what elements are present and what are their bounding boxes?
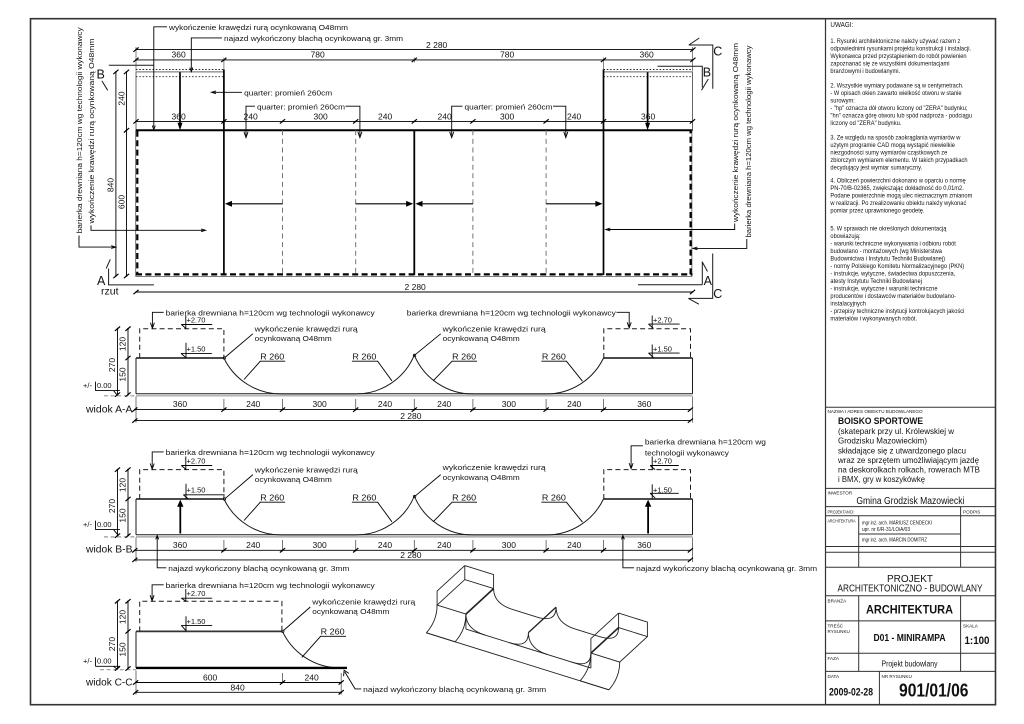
svg-text:B: B xyxy=(97,68,105,82)
svg-text:240: 240 xyxy=(567,112,581,122)
svg-text:+1.50: +1.50 xyxy=(187,344,206,353)
svg-text:R 260: R 260 xyxy=(260,353,285,362)
svg-text:240: 240 xyxy=(437,540,451,550)
svg-text:3. Ze względu na sposób zaokr: 3. Ze względu na sposób zaokrąglania wym… xyxy=(830,134,960,142)
svg-text:- W opisach okien zawarto wiel: - W opisach okien zawarto wielkość otwor… xyxy=(830,90,962,98)
svg-text:5. W sprawach nie określonych: 5. W sprawach nie określonych dokumentac… xyxy=(830,225,946,233)
svg-text:barierka drewniana h=120cm wg: barierka drewniana h=120cm wg technologi… xyxy=(744,45,753,237)
svg-text:+1.50: +1.50 xyxy=(187,617,206,626)
svg-text:- przepisy techniczne instytuc: - przepisy techniczne instytucji kontrol… xyxy=(830,308,964,316)
svg-text:D01 - MINIRAMPA: D01 - MINIRAMPA xyxy=(874,633,946,644)
svg-text:Projekt budowlany: Projekt budowlany xyxy=(882,659,938,668)
svg-text:0.00: 0.00 xyxy=(97,381,112,390)
svg-text:R 260: R 260 xyxy=(452,494,477,503)
svg-text:300: 300 xyxy=(502,399,516,409)
svg-text:INWESTOR: INWESTOR xyxy=(828,491,853,496)
svg-text:240: 240 xyxy=(567,399,581,409)
svg-text:mgr inż. arch. MARCIN DOMITRZ: mgr inż. arch. MARCIN DOMITRZ xyxy=(862,538,927,544)
svg-text:barierka drewniana h=120cm wg: barierka drewniana h=120cm wg xyxy=(645,438,766,447)
svg-text:barierka drewniana h=120cm wg: barierka drewniana h=120cm wg technologi… xyxy=(407,308,616,317)
svg-text:DATA: DATA xyxy=(828,674,841,679)
svg-text:300: 300 xyxy=(502,540,516,550)
svg-text:ocynkowaną O48mm: ocynkowaną O48mm xyxy=(443,473,520,482)
svg-text:+1.50: +1.50 xyxy=(187,485,206,494)
svg-text:2 280: 2 280 xyxy=(400,411,422,421)
svg-text:NR RYSUNKU: NR RYSUNKU xyxy=(882,674,912,679)
svg-text:240: 240 xyxy=(116,91,126,105)
svg-text:Grodzisku Mazowieckim): Grodzisku Mazowieckim) xyxy=(838,436,927,446)
svg-text:600: 600 xyxy=(203,673,217,683)
svg-text:ocynkowaną O48mm: ocynkowaną O48mm xyxy=(255,475,332,484)
svg-text:PN-70/B-02365, zwiększając dok: PN-70/B-02365, zwiększając dokładność do… xyxy=(830,185,964,193)
svg-text:najazd wykończony blachą ocynk: najazd wykończony blachą ocynkowaną gr. … xyxy=(636,564,817,573)
svg-text:najazd wykończony blachą ocynk: najazd wykończony blachą ocynkowaną gr. … xyxy=(224,34,403,43)
svg-text:240: 240 xyxy=(246,540,260,550)
svg-text:wykończenie krawędzi rurą: wykończenie krawędzi rurą xyxy=(442,325,547,334)
svg-text:1:100: 1:100 xyxy=(965,635,990,647)
svg-text:R 260: R 260 xyxy=(352,494,377,503)
svg-text:360: 360 xyxy=(172,50,186,60)
svg-text:300: 300 xyxy=(500,112,514,122)
svg-text:atesty Instytutu Techniki Bu: atesty Instytutu Techniki Budowlanej xyxy=(830,278,921,286)
svg-text:budowlano - montażowych (wg Mi: budowlano - montażowych (wg Ministerstwa xyxy=(830,248,942,256)
svg-text:360: 360 xyxy=(640,50,654,60)
svg-text:ocynkowaną O48mm: ocynkowaną O48mm xyxy=(255,334,332,343)
svg-text:360: 360 xyxy=(173,540,187,550)
svg-text:2. Wszystkie wymiary podawane: 2. Wszystkie wymiary podawane są w centy… xyxy=(830,82,963,90)
svg-text:240: 240 xyxy=(567,540,581,550)
svg-text:zapoznanać się ze wszystkimi d: zapoznanać się ze wszystkimi dokumentacj… xyxy=(830,60,949,68)
svg-text:270: 270 xyxy=(107,358,117,372)
svg-text:i BMX, gry w koszykówkę: i BMX, gry w koszykówkę xyxy=(838,474,925,484)
svg-text:wykończenie krawędzi rurą: wykończenie krawędzi rurą xyxy=(311,598,416,607)
svg-text:RYSUNKU: RYSUNKU xyxy=(828,629,850,634)
svg-text:+2.70: +2.70 xyxy=(187,589,206,598)
svg-text:BRANŻA: BRANŻA xyxy=(828,597,848,603)
svg-text:decydujący jest wymiar sumaryc: decydujący jest wymiar sumaryczny. xyxy=(830,164,922,172)
svg-text:A: A xyxy=(97,274,106,288)
svg-text:0.00: 0.00 xyxy=(97,520,112,529)
svg-text:wykończenie krawędzi rurą: wykończenie krawędzi rurą xyxy=(254,325,359,334)
svg-text:+/-: +/- xyxy=(83,520,92,529)
svg-text:wykończenie krawędzi rurą ocyn: wykończenie krawędzi rurą ocynkowaną O48… xyxy=(168,23,348,32)
svg-text:pomiar przez uprawnionego geod: pomiar przez uprawnionego geodetę. xyxy=(830,207,924,215)
svg-text:PODPIS: PODPIS xyxy=(963,510,980,515)
svg-text:- instrukcje, wytyczne i wa: - instrukcje, wytyczne i warunki technic… xyxy=(830,285,938,293)
svg-text:+2.70: +2.70 xyxy=(187,456,206,465)
svg-text:wykończenie krawędzi rurą ocyn: wykończenie krawędzi rurą ocynkowaną O48… xyxy=(87,39,96,225)
svg-text:240: 240 xyxy=(305,673,319,683)
svg-text:zbiorczym wymiarem elementu. W: zbiorczym wymiarem elementu. W takich pr… xyxy=(830,157,968,165)
svg-text:ARCHITEKTURA: ARCHITEKTURA xyxy=(866,604,953,616)
svg-text:300: 300 xyxy=(313,399,327,409)
svg-text:surowym:: surowym: xyxy=(830,97,855,105)
svg-text:widok B-B: widok B-B xyxy=(85,544,132,556)
svg-text:odpowiednimi rysunkami projekt: odpowiednimi rysunkami projektu konstruk… xyxy=(830,45,971,53)
svg-text:barierka drewniana h=120cm wg: barierka drewniana h=120cm wg technologi… xyxy=(75,27,84,233)
svg-text:+2.70: +2.70 xyxy=(653,315,672,324)
svg-text:Wykonawca przed przystąpieni: Wykonawca przed przystąpieniem do robót … xyxy=(830,53,967,61)
svg-text:120: 120 xyxy=(117,337,127,351)
svg-text:branżowymi i budowlanymi.: branżowymi i budowlanymi. xyxy=(830,68,900,76)
svg-text:PROJEKTANCI:: PROJEKTANCI: xyxy=(828,510,855,515)
svg-text:obowiazują:: obowiazują: xyxy=(830,233,860,241)
svg-text:UWAGI:: UWAGI: xyxy=(830,22,853,30)
svg-text:na deskorolkach rolkach, rower: na deskorolkach rolkach, rowerach MTB xyxy=(838,465,980,475)
svg-text:Gmina Grodzisk Mazowiecki: Gmina Grodzisk Mazowiecki xyxy=(856,496,964,507)
svg-text:150: 150 xyxy=(117,367,127,381)
svg-text:1. Rysunki architektoniczne n: 1. Rysunki architektoniczne należy używa… xyxy=(830,38,960,46)
svg-text:270: 270 xyxy=(107,637,117,651)
svg-text:najazd wykończony blachą ocynk: najazd wykończony blachą ocynkowaną gr. … xyxy=(168,564,349,573)
svg-text:ARCHITEKTONICZNO - BUDOWLANY: ARCHITEKTONICZNO - BUDOWLANY xyxy=(838,584,983,595)
svg-text:240: 240 xyxy=(246,399,260,409)
svg-text:(skatepark przy ul. Królewskie: (skatepark przy ul. Królewskiej w xyxy=(838,426,955,436)
svg-text:najazd wykończony blachą ocynk: najazd wykończony blachą ocynkowaną gr. … xyxy=(363,685,546,694)
svg-text:2009-02-28: 2009-02-28 xyxy=(829,687,873,699)
svg-text:R 260: R 260 xyxy=(452,353,477,362)
svg-text:R 260: R 260 xyxy=(542,494,567,503)
svg-text:780: 780 xyxy=(500,50,514,60)
svg-text:instalacyjnych: instalacyjnych xyxy=(830,300,866,308)
svg-text:niezgodności sumy wymiarów cz: niezgodności sumy wymiarów cząstkowych z… xyxy=(830,149,947,157)
svg-text:- instrukcje, wytyczne, świa: - instrukcje, wytyczne, świadectwa dopus… xyxy=(830,270,955,278)
svg-text:liczony od "ZERA" budynku.: liczony od "ZERA" budynku. xyxy=(830,120,901,128)
svg-text:widok C-C: widok C-C xyxy=(85,677,133,689)
svg-text:w realizacji. Po zrealizowaniu: w realizacji. Po zrealizowaniu obiektu n… xyxy=(830,200,967,208)
svg-text:- "hp" oznacza dół otworu licz: - "hp" oznacza dół otworu liczony od "ZE… xyxy=(830,105,967,113)
svg-text:240: 240 xyxy=(378,540,392,550)
svg-text:składające się z utwardzonego: składające się z utwardzonego placu xyxy=(838,446,966,456)
svg-text:materiałów i wykonywanych robó: materiałów i wykonywanych robót. xyxy=(830,315,917,323)
svg-text:producentów i dostawców materi: producentów i dostawców materiałów budow… xyxy=(830,293,955,301)
svg-text:360: 360 xyxy=(641,112,655,122)
svg-text:"hn" oznacza górę otworu lub s: "hn" oznacza górę otworu lub spód nadpro… xyxy=(830,112,972,120)
svg-text:360: 360 xyxy=(637,399,651,409)
svg-text:840: 840 xyxy=(106,178,116,192)
svg-text:+/-: +/- xyxy=(83,381,92,390)
svg-text:mgr inż. arch. MARIUSZ CENDECK: mgr inż. arch. MARIUSZ CENDECKI xyxy=(862,520,932,526)
svg-text:wykończenie krawędzi rurą: wykończenie krawędzi rurą xyxy=(254,465,359,474)
svg-text:901/01/06: 901/01/06 xyxy=(899,680,969,700)
svg-text:+1.50: +1.50 xyxy=(653,344,672,353)
svg-text:SKALA: SKALA xyxy=(963,623,979,628)
svg-text:300: 300 xyxy=(314,112,328,122)
svg-text:600: 600 xyxy=(116,195,126,209)
svg-text:R 260: R 260 xyxy=(542,353,567,362)
svg-text:Podane powierzchnie mogą ulec: Podane powierzchnie mogą ulec nieznaczny… xyxy=(830,192,972,200)
svg-text:widok A-A: widok A-A xyxy=(85,403,132,415)
svg-text:ARCHITEKTURA: ARCHITEKTURA xyxy=(828,518,857,523)
svg-text:240: 240 xyxy=(378,399,392,409)
svg-text:ocynkowaną O48mm: ocynkowaną O48mm xyxy=(312,607,389,616)
svg-text:150: 150 xyxy=(117,642,127,656)
svg-text:quarter: promień 260cm: quarter: promień 260cm xyxy=(257,103,345,112)
svg-text:120: 120 xyxy=(117,478,127,492)
svg-text:240: 240 xyxy=(438,112,452,122)
svg-text:quarter: promień 260cm: quarter: promień 260cm xyxy=(465,103,553,112)
svg-text:2 280: 2 280 xyxy=(400,550,422,560)
svg-text:użytym programie CAD mogą wys: użytym programie CAD mogą wystąpić niewi… xyxy=(830,142,955,150)
svg-text:120: 120 xyxy=(117,610,127,624)
svg-text:4. Obliczeń powierzchni dokona: 4. Obliczeń powierzchni dokonano w oparc… xyxy=(830,177,966,185)
svg-text:wraz ze sprzętem umożliwiający: wraz ze sprzętem umożliwiającym jazdę xyxy=(837,455,979,465)
svg-text:240: 240 xyxy=(378,112,392,122)
svg-text:B: B xyxy=(703,66,711,80)
svg-text:ocynkowaną O48mm: ocynkowaną O48mm xyxy=(443,334,520,343)
svg-text:2 280: 2 280 xyxy=(405,282,427,292)
svg-text:R 260: R 260 xyxy=(352,353,377,362)
svg-text:2 280: 2 280 xyxy=(426,40,448,50)
svg-text:840: 840 xyxy=(231,682,245,692)
svg-text:TREŚĆ: TREŚĆ xyxy=(828,621,844,628)
svg-text:upr. nr 6/R-31/LOiA/03: upr. nr 6/R-31/LOiA/03 xyxy=(862,527,910,533)
svg-text:270: 270 xyxy=(107,499,117,513)
svg-text:- warunki techniczne wykonywan: - warunki techniczne wykonywania i odbio… xyxy=(830,240,956,248)
svg-text:R 260: R 260 xyxy=(260,494,285,503)
svg-text:300: 300 xyxy=(313,540,327,550)
svg-text:wykończenie krawędzi rurą: wykończenie krawędzi rurą xyxy=(442,463,547,472)
svg-text:+2.70: +2.70 xyxy=(187,315,206,324)
svg-text:240: 240 xyxy=(437,399,451,409)
svg-text:C: C xyxy=(713,287,722,301)
svg-text:wykończenie krawędzi rurą ocyn: wykończenie krawędzi rurą ocynkowaną O48… xyxy=(731,43,740,223)
svg-text:Budownictwa i Instytutu Techni: Budownictwa i Instytutu Techniki Budowla… xyxy=(830,255,945,263)
svg-text:360: 360 xyxy=(172,112,186,122)
svg-text:- normy Polskiego Komitetu No: - normy Polskiego Komitetu Normalizacyjn… xyxy=(830,263,964,271)
svg-text:+2.70: +2.70 xyxy=(653,456,672,465)
svg-text:+/-: +/- xyxy=(83,657,92,666)
svg-text:0.00: 0.00 xyxy=(97,657,112,666)
svg-text:R 260: R 260 xyxy=(321,628,346,637)
svg-text:FAZA: FAZA xyxy=(828,656,840,661)
svg-text:NAZWA I ADRES OBIEKTU BUDOWLAN: NAZWA I ADRES OBIEKTU BUDOWLANEGO xyxy=(828,409,923,414)
svg-text:360: 360 xyxy=(637,540,651,550)
svg-text:quarter: promień 260cm: quarter: promień 260cm xyxy=(244,89,332,98)
svg-text:A: A xyxy=(704,274,713,288)
svg-text:780: 780 xyxy=(311,50,325,60)
svg-text:360: 360 xyxy=(173,399,187,409)
svg-text:C: C xyxy=(713,45,722,59)
svg-text:150: 150 xyxy=(117,508,127,522)
